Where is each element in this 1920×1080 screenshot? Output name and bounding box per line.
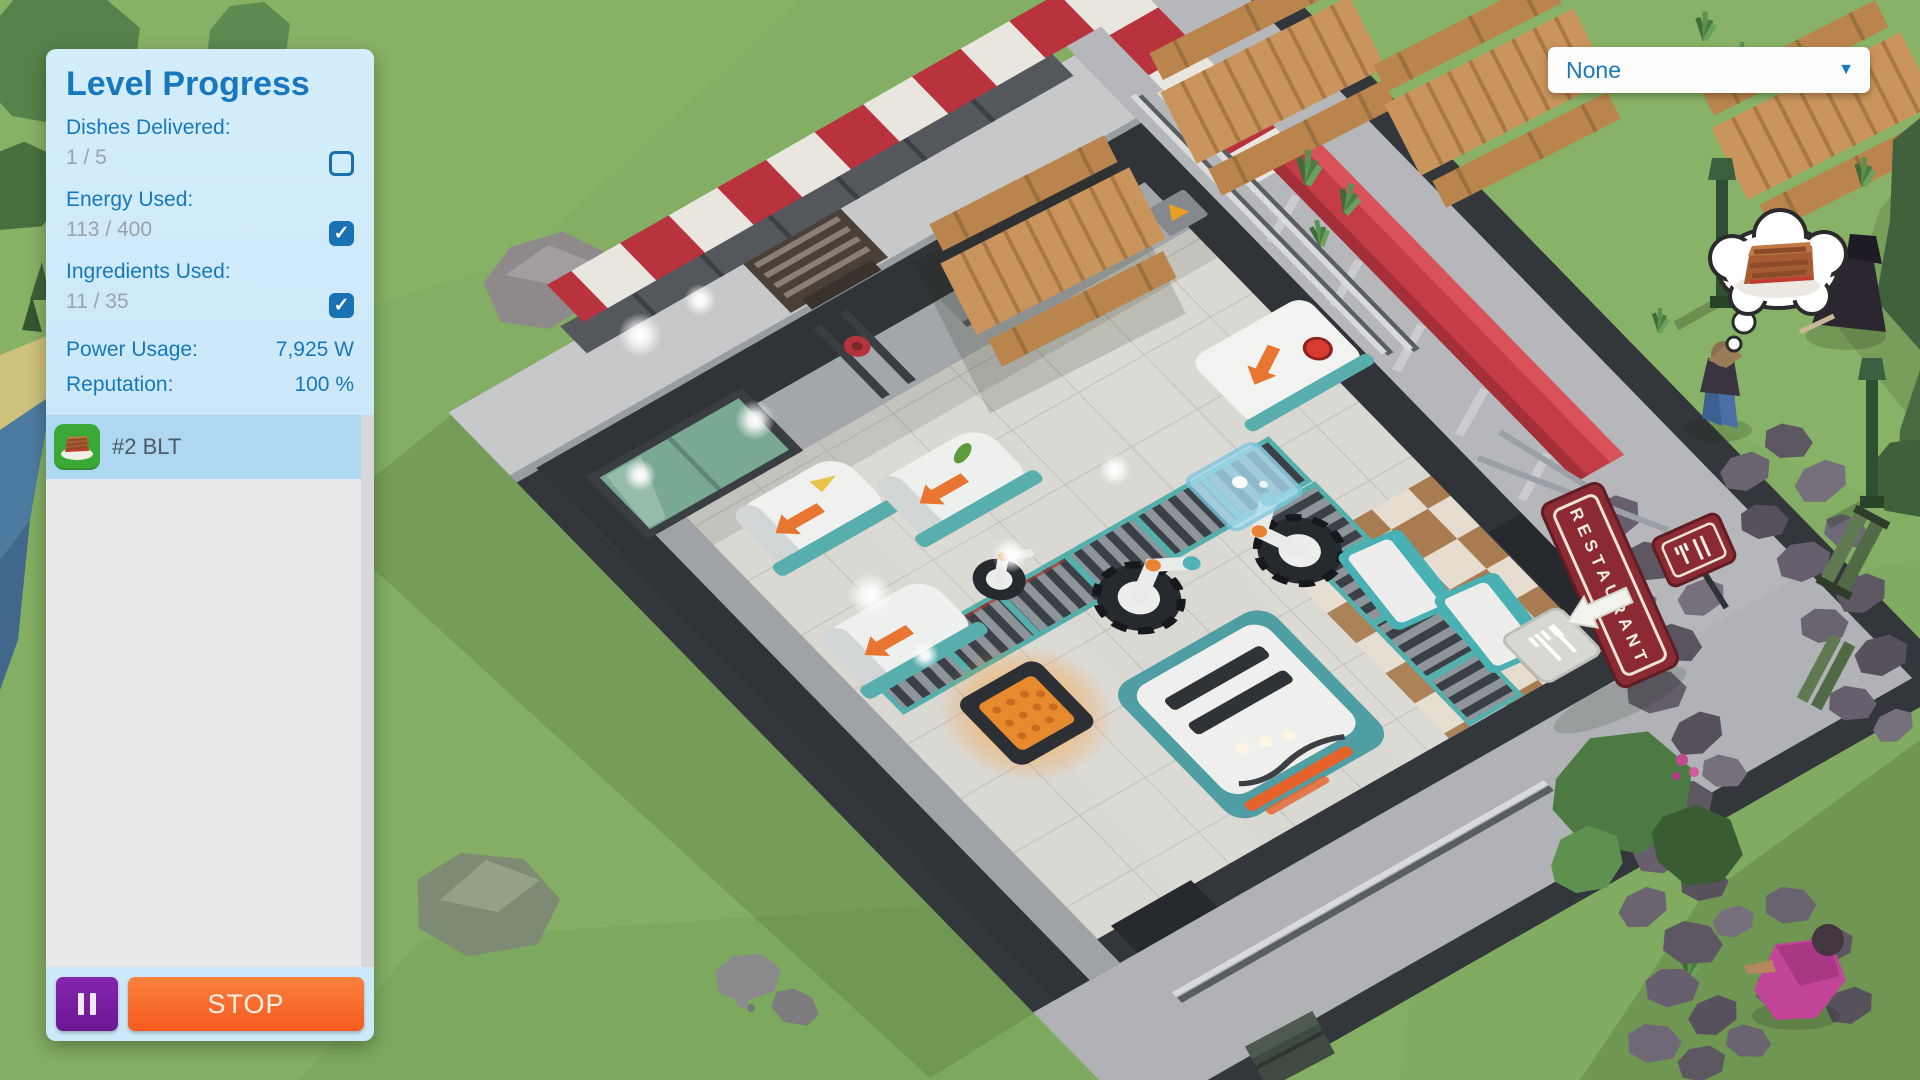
- stat-value: 1 / 5: [66, 143, 354, 173]
- order-list-scrollbar[interactable]: [361, 415, 374, 967]
- stat-value: 113 / 400: [66, 215, 354, 245]
- stat-checkbox-0[interactable]: [329, 151, 354, 176]
- order-row-0[interactable]: #2 BLT: [46, 415, 374, 479]
- metric-power-usage: Power Usage: 7,925 W: [66, 335, 354, 365]
- overlay-mode-dropdown[interactable]: None ▼: [1548, 47, 1870, 93]
- metric-value: 7,925 W: [276, 335, 354, 365]
- stat-label: Ingredients Used:: [66, 257, 354, 287]
- control-buttons: STOP: [56, 977, 364, 1031]
- metric-value: 100 %: [294, 370, 354, 400]
- game-screen: RESTAURANT: [0, 0, 1920, 1080]
- stat-ingredients-used: Ingredients Used: 11 / 35 ✓: [66, 257, 354, 317]
- panel-title: Level Progress: [66, 65, 310, 104]
- order-label: #2 BLT: [112, 434, 181, 460]
- pause-button[interactable]: [56, 977, 118, 1031]
- stat-label: Dishes Delivered:: [66, 113, 354, 143]
- dropdown-value: None: [1566, 57, 1838, 84]
- stat-checkbox-1[interactable]: ✓: [329, 221, 354, 246]
- stat-label: Energy Used:: [66, 185, 354, 215]
- order-list: #2 BLT: [46, 415, 374, 967]
- metric-label: Reputation:: [66, 373, 173, 396]
- stop-button[interactable]: STOP: [128, 977, 364, 1031]
- metric-label: Power Usage:: [66, 338, 198, 361]
- level-progress-panel: Level Progress Dishes Delivered: 1 / 5 E…: [46, 49, 374, 1041]
- stat-checkbox-2[interactable]: ✓: [329, 293, 354, 318]
- stat-value: 11 / 35: [66, 287, 354, 317]
- chevron-down-icon: ▼: [1838, 61, 1854, 79]
- metric-reputation: Reputation: 100 %: [66, 370, 354, 400]
- pause-icon: [78, 993, 96, 1015]
- stat-dishes-delivered: Dishes Delivered: 1 / 5: [66, 113, 354, 173]
- blt-dish-icon: [54, 424, 100, 470]
- stat-energy-used: Energy Used: 113 / 400 ✓: [66, 185, 354, 245]
